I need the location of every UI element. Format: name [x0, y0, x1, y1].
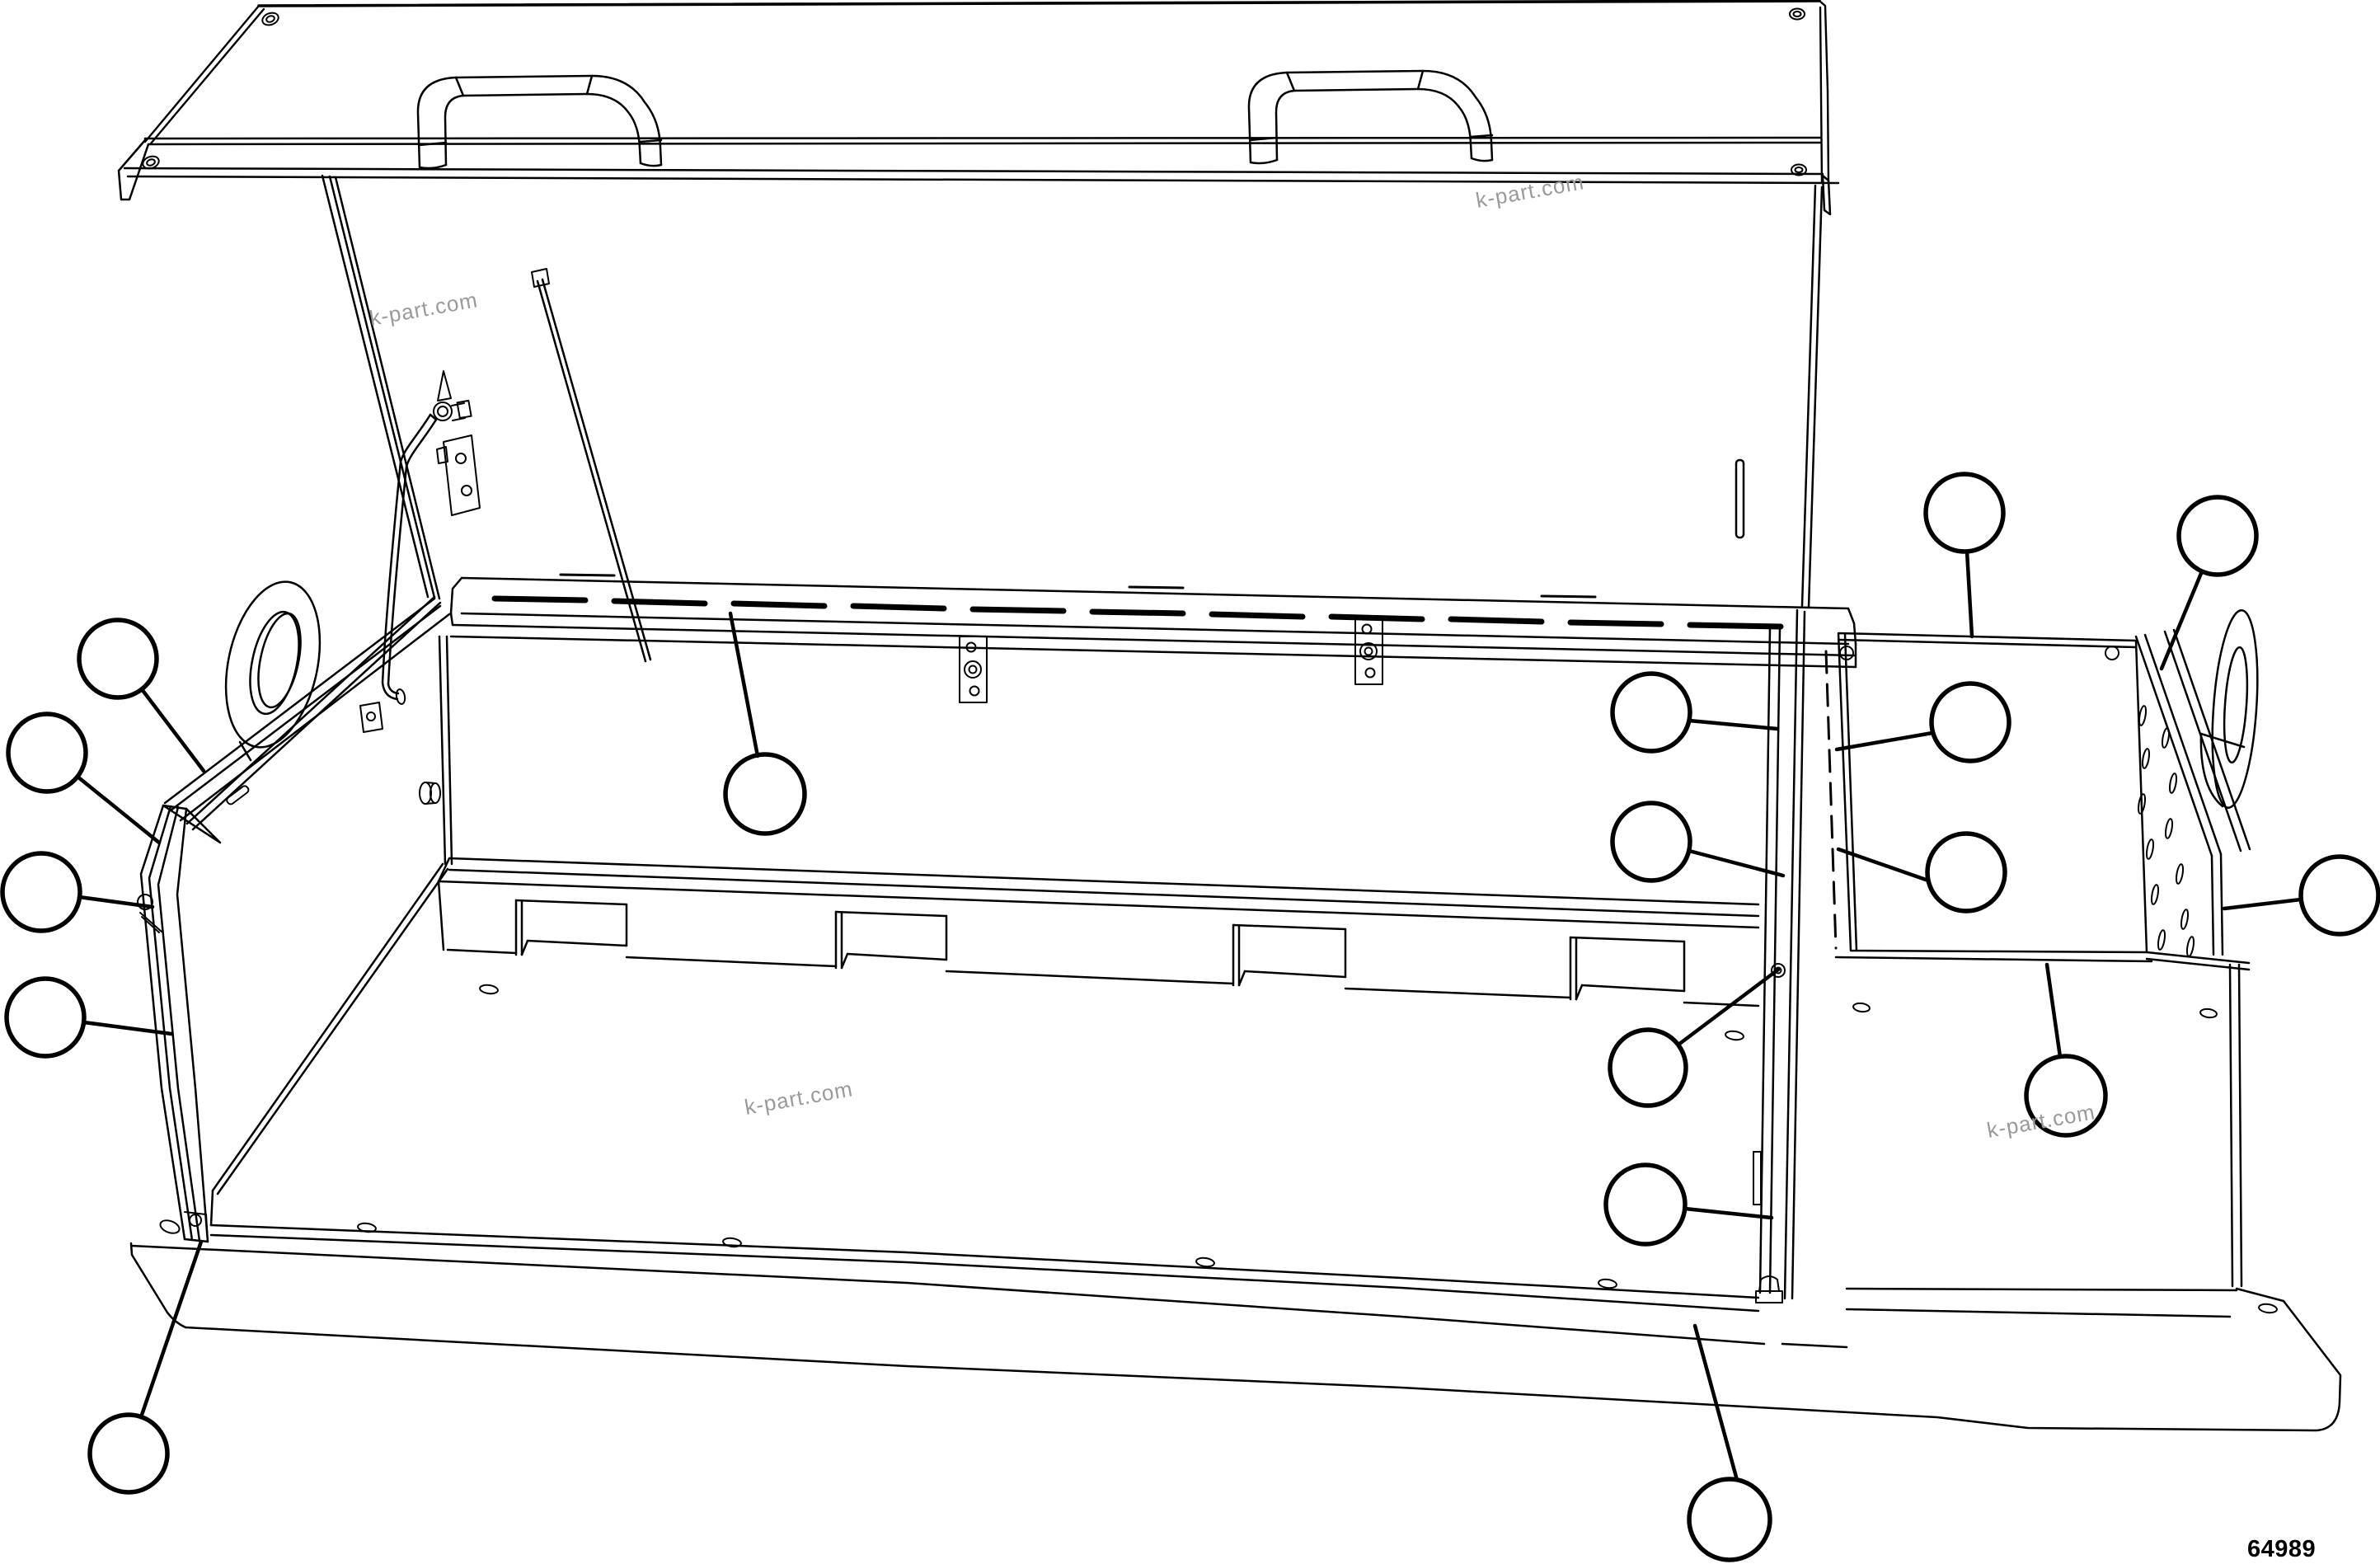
- svg-text:k-part.com: k-part.com: [1985, 1099, 2097, 1143]
- svg-text:k-part.com: k-part.com: [1474, 169, 1586, 213]
- svg-text:k-part.com: k-part.com: [368, 287, 480, 331]
- svg-text:k-part.com: k-part.com: [743, 1076, 855, 1120]
- svg-text:64989: 64989: [2247, 1536, 2316, 1562]
